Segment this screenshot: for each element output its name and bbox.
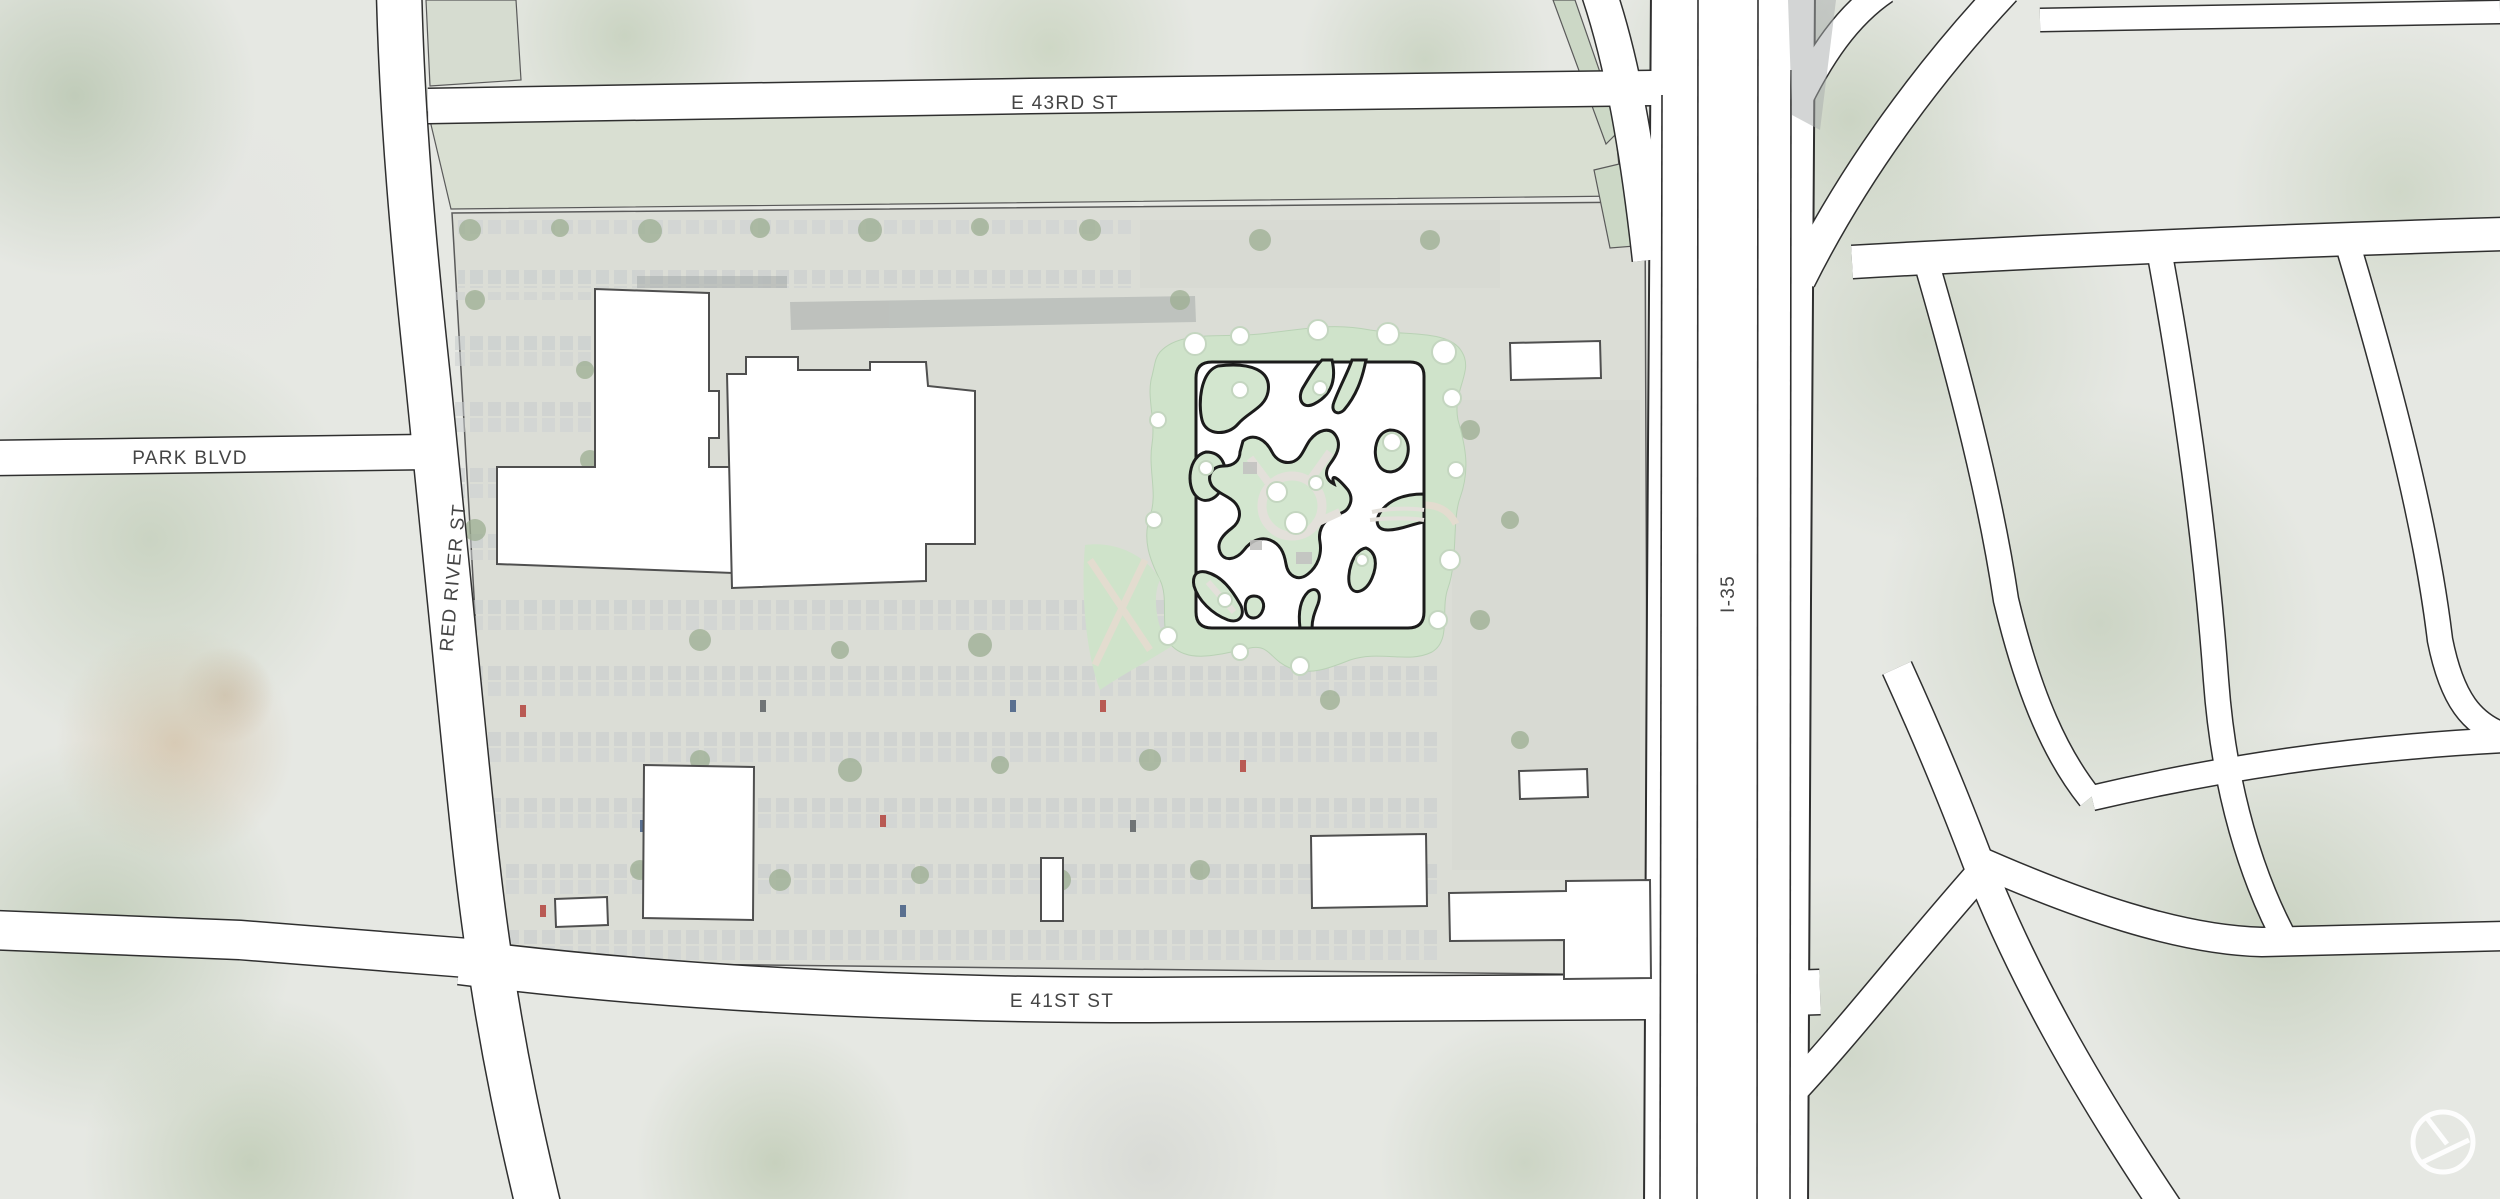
building-east-small	[1519, 769, 1588, 799]
road-top-right	[2040, 12, 2500, 20]
courtyard-bottom-small	[1245, 596, 1263, 618]
road-east-h3	[2092, 740, 2500, 798]
north-arrow-icon	[2413, 1112, 2473, 1172]
label-park-blvd: PARK BLVD	[132, 448, 248, 469]
road-east-v3	[2350, 252, 2500, 736]
building-south-center	[1311, 834, 1427, 908]
building-northeast	[1510, 341, 1601, 380]
label-e-43rd-st: E 43RD ST	[1011, 93, 1119, 114]
parking-lot-north-east	[1140, 220, 1500, 288]
road-east-v1	[1928, 268, 2090, 798]
plan-overlay: E 43RD ST PARK BLVD RED RIVER ST I-35 E …	[0, 0, 2500, 1199]
road-east-v2	[2160, 255, 2288, 945]
road-e-41st-st-west	[0, 930, 468, 958]
road-east-h1	[1852, 234, 2500, 262]
ramp-southeast	[1792, 862, 1990, 1092]
site-plan-canvas: E 43RD ST PARK BLVD RED RIVER ST I-35 E …	[0, 0, 2500, 1199]
label-i-35: I-35	[1718, 575, 1739, 613]
building-southwest-tall	[643, 765, 754, 920]
parking-lot-east	[1452, 400, 1640, 870]
road-east-h2	[1972, 858, 2500, 942]
label-e-41st-st: E 41ST ST	[1010, 991, 1114, 1012]
building-south-narrow	[1041, 858, 1063, 921]
building-southwest-small	[555, 897, 608, 927]
